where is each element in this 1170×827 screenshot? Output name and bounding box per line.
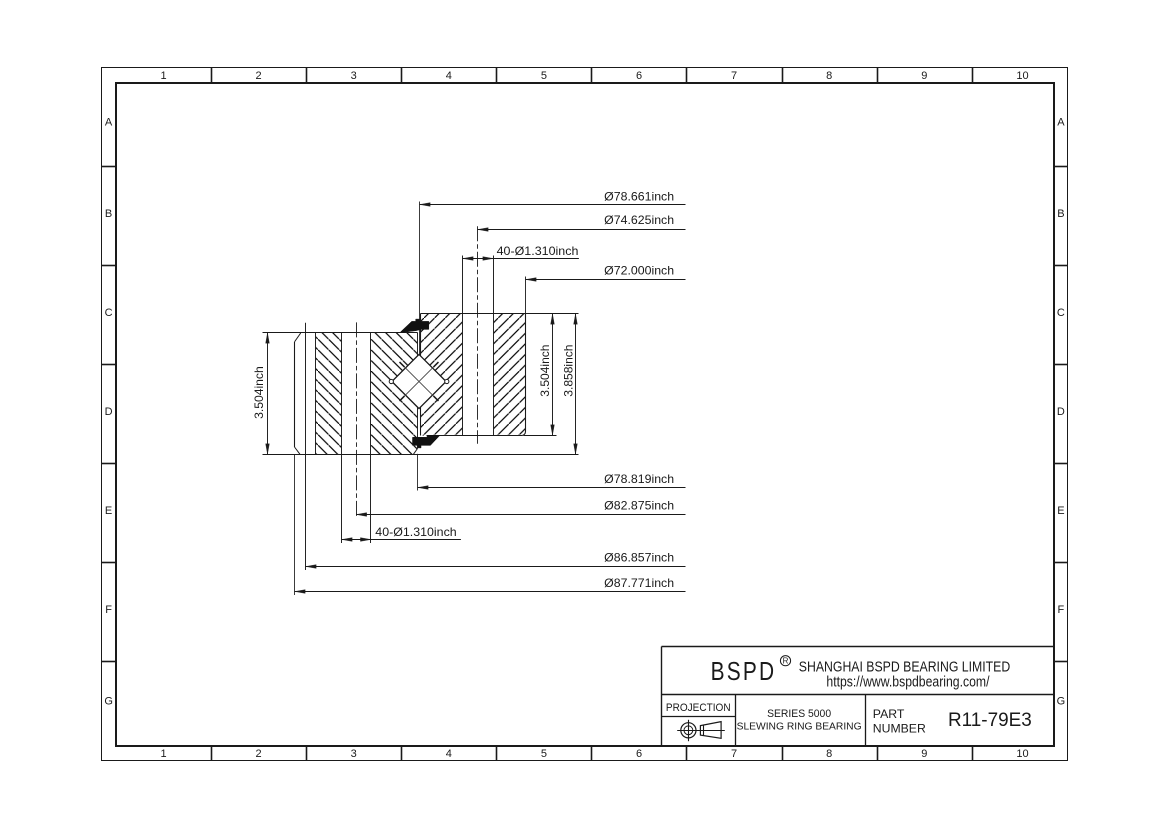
svg-text:3: 3 (351, 70, 357, 82)
svg-text:PART: PART (873, 707, 905, 721)
svg-text:SERIES 5000: SERIES 5000 (767, 708, 831, 720)
svg-text:3.504inch: 3.504inch (252, 366, 266, 419)
svg-text:C: C (1057, 307, 1065, 319)
svg-text:PROJECTION: PROJECTION (666, 702, 731, 714)
svg-text:3.858inch: 3.858inch (561, 345, 575, 397)
svg-text:3.504inch: 3.504inch (538, 345, 552, 397)
svg-text:10: 10 (1016, 70, 1028, 82)
svg-text:Ø86.857inch: Ø86.857inch (604, 551, 674, 565)
svg-text:3: 3 (351, 748, 357, 760)
svg-text:E: E (1057, 505, 1064, 517)
svg-text:G: G (1057, 696, 1066, 708)
svg-text:4: 4 (446, 748, 452, 760)
svg-text:NUMBER: NUMBER (873, 722, 926, 736)
svg-text:B: B (1057, 208, 1064, 220)
svg-text:6: 6 (636, 748, 642, 760)
svg-text:Ø72.000inch: Ø72.000inch (604, 264, 674, 278)
svg-text:5: 5 (541, 70, 547, 82)
svg-text:9: 9 (921, 70, 927, 82)
svg-text:2: 2 (256, 70, 262, 82)
svg-text:Ø74.625inch: Ø74.625inch (604, 213, 674, 227)
svg-text:BSPD: BSPD (711, 657, 777, 685)
svg-text:9: 9 (921, 748, 927, 760)
svg-text:2: 2 (256, 748, 262, 760)
svg-text:Ø78.661inch: Ø78.661inch (604, 189, 674, 203)
svg-text:10: 10 (1016, 748, 1028, 760)
svg-text:8: 8 (826, 70, 832, 82)
svg-text:F: F (1058, 604, 1065, 616)
svg-text:Ø82.875inch: Ø82.875inch (604, 498, 674, 512)
svg-text:40-Ø1.310inch: 40-Ø1.310inch (375, 525, 456, 539)
svg-text:R11-79E3: R11-79E3 (948, 710, 1032, 731)
svg-text:B: B (105, 208, 112, 220)
svg-text:Ø87.771inch: Ø87.771inch (604, 576, 674, 590)
svg-text:G: G (104, 696, 113, 708)
svg-text:7: 7 (731, 748, 737, 760)
svg-text:40-Ø1.310inch: 40-Ø1.310inch (497, 244, 579, 258)
svg-text:A: A (1057, 117, 1065, 129)
svg-text:D: D (105, 406, 113, 418)
svg-text:1: 1 (160, 748, 166, 760)
svg-text:Ø78.819inch: Ø78.819inch (604, 472, 674, 486)
svg-text:6: 6 (636, 70, 642, 82)
svg-text:1: 1 (160, 70, 166, 82)
svg-text:7: 7 (731, 70, 737, 82)
svg-text:4: 4 (446, 70, 452, 82)
svg-text:https://www.bspdbearing.com/: https://www.bspdbearing.com/ (826, 673, 990, 690)
svg-text:C: C (105, 307, 113, 319)
svg-text:E: E (105, 505, 112, 517)
svg-text:SLEWING RING BEARING: SLEWING RING BEARING (737, 721, 862, 732)
svg-text:5: 5 (541, 748, 547, 760)
svg-text:A: A (105, 117, 113, 129)
svg-text:8: 8 (826, 748, 832, 760)
svg-text:R: R (783, 657, 789, 666)
svg-text:F: F (105, 604, 112, 616)
svg-text:D: D (1057, 406, 1065, 418)
